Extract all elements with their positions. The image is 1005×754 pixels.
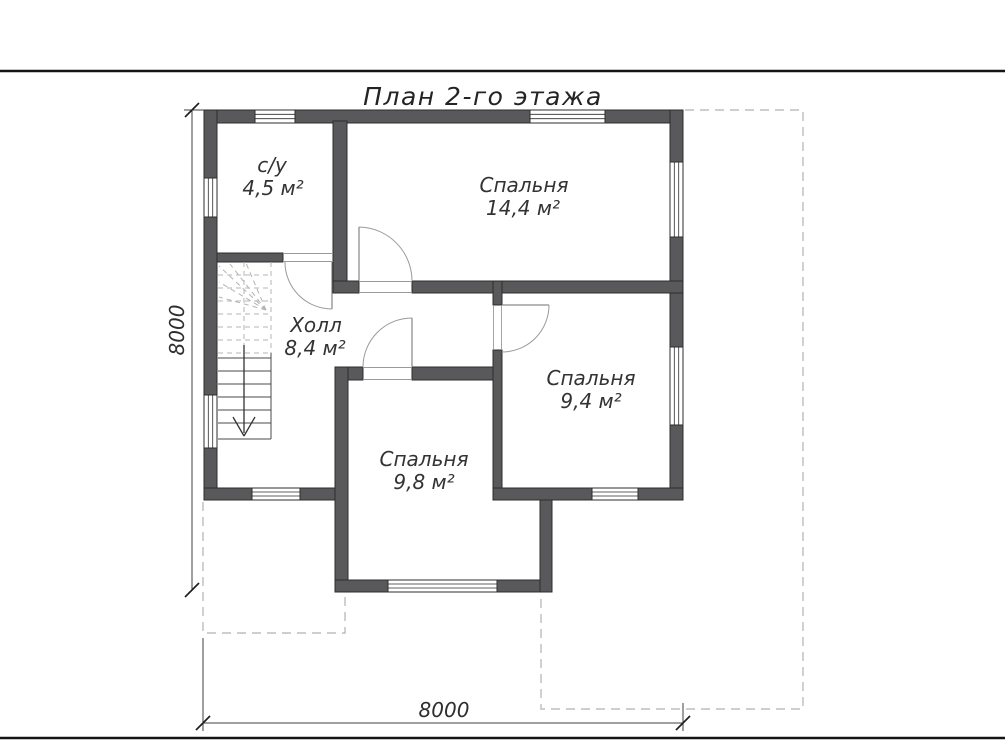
winder-line [246, 263, 266, 310]
wall-bathroom-bedroom [333, 121, 347, 293]
room-area-bedroom-right: 9,4 м² [560, 389, 621, 413]
window-stairs-left [204, 395, 217, 448]
room-label-hall: Холл [289, 313, 342, 337]
winder-line [230, 264, 266, 310]
wall-bedroom-large-bottom-a [333, 281, 359, 293]
room-area-bathroom: 4,5 м² [242, 176, 303, 200]
dimension-left-value: 8000 [165, 305, 189, 356]
window-stairs-bottom [252, 488, 300, 500]
room-label-bedroom-bottom: Спальня [380, 447, 469, 471]
room-label-bathroom: с/у [257, 153, 288, 177]
wall-bathroom-bottom [217, 253, 283, 262]
room-label-bedroom-right: Спальня [547, 366, 636, 390]
plan-title: План 2-го этажа [363, 82, 603, 111]
window-bedroom-large-right [670, 162, 683, 237]
drawing-page: План 2-го этажа [0, 0, 1005, 754]
room-labels: с/у 4,5 м² Спальня 14,4 м² Холл 8,4 м² С… [242, 153, 635, 494]
window-bathroom-left [204, 178, 217, 217]
door-bedroom-bottom [363, 318, 412, 367]
floor-plan-canvas: План 2-го этажа [0, 0, 1005, 754]
door-arc [363, 318, 412, 367]
room-area-bedroom-large: 14,4 м² [486, 196, 560, 220]
winder-line [219, 282, 266, 310]
stairs-upper-flight-dashed [218, 262, 271, 356]
room-area-bedroom-bottom: 9,8 м² [393, 470, 454, 494]
roof-outline-left [203, 502, 345, 633]
window-bedroom-right-right [670, 347, 683, 425]
room-area-hall: 8,4 м² [284, 336, 345, 360]
window-bay-bottom [388, 580, 497, 592]
wall-bedroom-large-bottom-b [412, 281, 683, 293]
door-bedroom-right [502, 305, 549, 352]
door-bedroom-large [359, 227, 412, 281]
window-bedroom-large-top [530, 110, 605, 123]
dimension-left: 8000 [165, 103, 204, 597]
window-bathroom-top [255, 110, 295, 123]
wall-bottom-right [493, 488, 683, 500]
door-bathroom [285, 262, 332, 309]
room-label-bedroom-large: Спальня [480, 173, 569, 197]
stairs-direction-arrow [233, 345, 255, 436]
wall-bay-right [540, 488, 552, 592]
door-arc [359, 227, 412, 281]
wall-hall-bedroom-right-b [493, 350, 502, 488]
dimension-bottom: 8000 [196, 638, 690, 731]
door-arc [285, 262, 332, 309]
dimension-bottom-value: 8000 [419, 698, 470, 722]
wall-hall-bedroom-right-a [493, 281, 502, 305]
window-bedroom-right-bottom [592, 488, 638, 500]
wall-hall-bottom-b [412, 367, 502, 380]
door-arc [502, 305, 549, 352]
wall-bay-left [335, 367, 348, 592]
staircase [218, 262, 271, 439]
